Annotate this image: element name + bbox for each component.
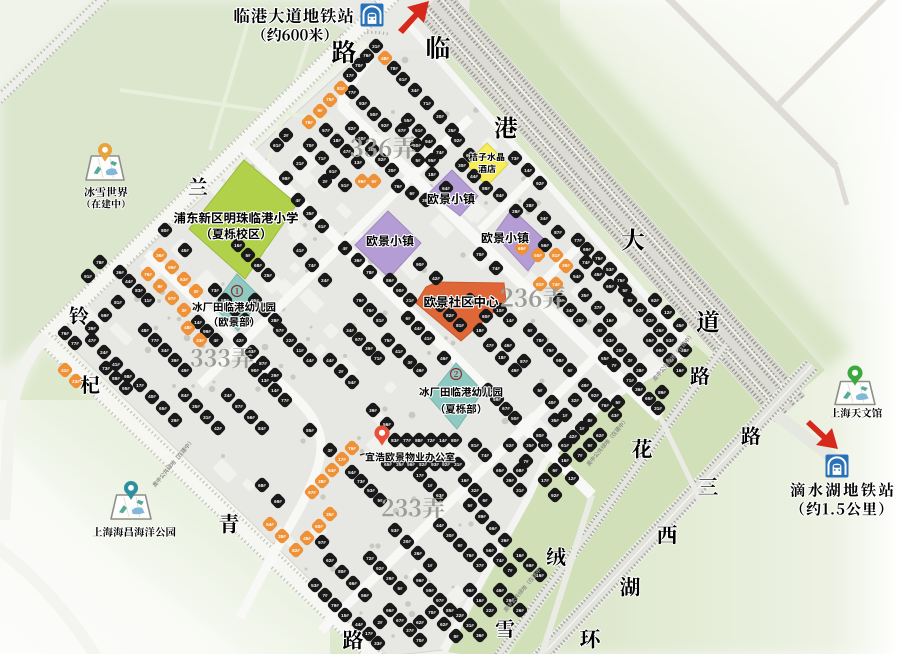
svg-text:93#: 93# — [359, 101, 367, 106]
svg-text:65#: 65# — [159, 406, 167, 411]
svg-text:5#: 5# — [245, 253, 251, 258]
svg-text:3#: 3# — [327, 448, 333, 453]
svg-text:41#: 41# — [395, 349, 403, 354]
svg-text:37#: 37# — [594, 305, 602, 310]
svg-text:81#: 81# — [552, 253, 560, 258]
svg-text:48#: 48# — [141, 328, 149, 333]
svg-text:33#: 33# — [196, 338, 204, 343]
svg-text:61#: 61# — [273, 143, 281, 148]
svg-text:18#: 18# — [333, 138, 341, 143]
svg-text:15#: 15# — [341, 613, 349, 618]
svg-text:69#: 69# — [583, 247, 591, 252]
svg-text:78#: 78# — [366, 270, 374, 275]
svg-text:79#: 79# — [356, 298, 364, 303]
svg-text:9#: 9# — [597, 328, 603, 333]
svg-text:85#: 85# — [306, 428, 314, 433]
svg-text:6#: 6# — [409, 191, 415, 196]
svg-text:87#: 87# — [259, 361, 267, 366]
svg-text:72#: 72# — [366, 556, 374, 561]
svg-text:55#: 55# — [601, 356, 609, 361]
svg-text:34#: 34# — [411, 88, 419, 93]
svg-text:53#: 53# — [311, 583, 319, 588]
svg-text:49#: 49# — [581, 383, 589, 388]
svg-text:24#: 24# — [321, 278, 329, 283]
svg-text:13#: 13# — [354, 160, 362, 165]
svg-text:60#: 60# — [315, 524, 323, 529]
svg-text:20#: 20# — [576, 318, 584, 323]
svg-text:54#: 54# — [348, 380, 356, 385]
svg-text:77#: 77# — [574, 238, 582, 243]
svg-text:56#: 56# — [247, 415, 255, 420]
svg-text:48#: 48# — [381, 56, 389, 61]
svg-text:56#: 56# — [361, 593, 369, 598]
svg-text:35#: 35# — [396, 462, 404, 467]
svg-text:73#: 73# — [102, 366, 110, 371]
svg-text:92#: 92# — [376, 566, 384, 571]
svg-text:67#: 67# — [541, 443, 549, 448]
svg-text:77#: 77# — [403, 438, 411, 443]
svg-text:61#: 61# — [561, 443, 569, 448]
svg-text:36#: 36# — [156, 253, 164, 258]
svg-text:86#: 86# — [386, 278, 394, 283]
svg-text:68#: 68# — [254, 263, 262, 268]
svg-text:31#: 31# — [466, 623, 474, 628]
svg-text:89#: 89# — [478, 514, 486, 519]
svg-text:93#: 93# — [431, 462, 439, 467]
svg-text:39#: 39# — [88, 326, 96, 331]
svg-text:94#: 94# — [425, 139, 433, 144]
svg-text:25#: 25# — [264, 273, 272, 278]
svg-text:34#: 34# — [540, 216, 548, 221]
svg-text:97#: 97# — [436, 598, 444, 603]
svg-text:76#: 76# — [363, 53, 371, 58]
svg-text:73#: 73# — [211, 288, 219, 293]
svg-text:98#: 98# — [124, 374, 132, 379]
svg-text:12#: 12# — [568, 476, 576, 481]
svg-text:82#: 82# — [378, 157, 386, 162]
svg-text:30#: 30# — [436, 114, 444, 119]
svg-text:96#: 96# — [386, 608, 394, 613]
svg-text:92#: 92# — [381, 123, 389, 128]
svg-text:30#: 30# — [458, 163, 466, 168]
svg-text:35#: 35# — [192, 404, 200, 409]
svg-text:24#: 24# — [100, 350, 108, 355]
svg-text:28#: 28# — [512, 209, 520, 214]
svg-text:84#: 84# — [181, 393, 189, 398]
svg-text:71#: 71# — [318, 156, 326, 161]
svg-text:31#: 31# — [203, 415, 211, 420]
svg-text:46#: 46# — [496, 588, 504, 593]
svg-text:79#: 79# — [331, 603, 339, 608]
svg-text:36#: 36# — [635, 387, 643, 392]
svg-text:70#: 70# — [476, 252, 484, 257]
svg-text:82#: 82# — [536, 282, 544, 287]
svg-text:1#: 1# — [579, 426, 585, 431]
svg-text:14#: 14# — [194, 320, 202, 325]
svg-text:3#: 3# — [193, 289, 199, 294]
svg-text:18#: 18# — [428, 172, 436, 177]
svg-text:90#: 90# — [251, 368, 259, 373]
svg-text:77#: 77# — [151, 338, 159, 343]
svg-text:67#: 67# — [502, 406, 510, 411]
svg-text:34#: 34# — [161, 348, 169, 353]
svg-text:63#: 63# — [180, 277, 188, 282]
svg-text:43#: 43# — [611, 413, 619, 418]
svg-text:41#: 41# — [112, 362, 120, 367]
svg-text:69#: 69# — [606, 284, 614, 289]
svg-text:54#: 54# — [266, 522, 274, 527]
svg-text:31#: 31# — [654, 406, 662, 411]
svg-text:38#: 38# — [318, 479, 326, 484]
svg-text:9#: 9# — [317, 108, 323, 113]
svg-text:67#: 67# — [355, 337, 363, 342]
svg-text:18#: 18# — [498, 355, 506, 360]
svg-text:66#: 66# — [489, 526, 497, 531]
svg-text:3#: 3# — [407, 360, 413, 365]
svg-text:41#: 41# — [61, 368, 69, 373]
svg-text:73#: 73# — [357, 479, 365, 484]
svg-text:90#: 90# — [396, 288, 404, 293]
svg-text:4#: 4# — [213, 338, 219, 343]
svg-text:92#: 92# — [591, 393, 599, 398]
svg-text:76#: 76# — [601, 403, 609, 408]
svg-text:8#: 8# — [453, 634, 459, 639]
svg-text:8#: 8# — [157, 284, 163, 289]
svg-text:17#: 17# — [365, 631, 373, 636]
svg-text:65#: 65# — [496, 468, 504, 473]
svg-text:21#: 21# — [406, 298, 414, 303]
svg-text:28#: 28# — [526, 203, 534, 208]
svg-text:61#: 61# — [399, 77, 407, 82]
svg-text:44#: 44# — [470, 174, 478, 179]
svg-text:75#: 75# — [384, 338, 392, 343]
svg-text:17#: 17# — [416, 473, 424, 478]
svg-text:39#: 39# — [369, 408, 377, 413]
svg-text:39#: 39# — [506, 478, 514, 483]
svg-text:38#: 38# — [278, 534, 286, 539]
svg-text:92#: 92# — [536, 181, 544, 186]
svg-text:32#: 32# — [471, 488, 479, 493]
svg-text:13#: 13# — [261, 378, 269, 383]
svg-text:53#: 53# — [666, 338, 674, 343]
svg-text:95#: 95# — [122, 386, 130, 391]
svg-text:62#: 62# — [416, 620, 424, 625]
svg-text:91#: 91# — [84, 274, 92, 279]
svg-text:67#: 67# — [308, 490, 316, 495]
svg-text:56#: 56# — [486, 548, 494, 553]
svg-text:45#: 45# — [181, 248, 189, 253]
svg-text:87#: 87# — [168, 296, 176, 301]
svg-text:81#: 81# — [456, 323, 464, 328]
svg-text:5#: 5# — [615, 400, 621, 405]
svg-text:14#: 14# — [271, 388, 279, 393]
svg-text:92#: 92# — [442, 462, 450, 467]
svg-text:34#: 34# — [566, 308, 574, 313]
svg-text:71#: 71# — [626, 378, 634, 383]
svg-text:78#: 78# — [390, 66, 398, 71]
svg-text:5#: 5# — [537, 388, 543, 393]
svg-text:44#: 44# — [326, 358, 334, 363]
svg-text:64#: 64# — [442, 186, 450, 191]
svg-text:92#: 92# — [454, 138, 462, 143]
svg-text:82#: 82# — [292, 548, 300, 553]
svg-text:20#: 20# — [388, 168, 396, 173]
svg-text:16#: 16# — [461, 478, 469, 483]
svg-text:26#: 26# — [414, 551, 422, 556]
svg-text:35#: 35# — [326, 512, 334, 517]
svg-text:21#: 21# — [296, 161, 304, 166]
svg-text:70#: 70# — [428, 610, 436, 615]
svg-text:88#: 88# — [482, 186, 490, 191]
svg-text:74#: 74# — [492, 266, 500, 271]
svg-text:53#: 53# — [606, 267, 614, 272]
svg-text:73#: 73# — [511, 156, 519, 161]
svg-text:22#: 22# — [456, 613, 464, 618]
svg-text:62#: 62# — [636, 308, 644, 313]
svg-text:98#: 98# — [282, 176, 290, 181]
svg-text:74#: 74# — [552, 282, 560, 287]
svg-text:79#: 79# — [546, 348, 554, 353]
svg-text:49#: 49# — [511, 368, 519, 373]
svg-text:39#: 39# — [365, 346, 373, 351]
svg-text:84#: 84# — [496, 193, 504, 198]
svg-text:7#: 7# — [322, 593, 328, 598]
svg-text:81#: 81# — [114, 300, 122, 305]
svg-text:82#: 82# — [348, 126, 356, 131]
svg-text:76#: 76# — [144, 272, 152, 277]
svg-text:41#: 41# — [296, 248, 304, 253]
svg-text:87#: 87# — [235, 404, 243, 409]
svg-text:29#: 29# — [386, 576, 394, 581]
svg-text:37#: 37# — [476, 563, 484, 568]
svg-text:16#: 16# — [606, 318, 614, 323]
svg-text:49#: 49# — [416, 368, 424, 373]
svg-text:2#: 2# — [283, 133, 289, 138]
svg-text:78#: 78# — [305, 120, 313, 125]
svg-text:60#: 60# — [482, 314, 490, 319]
svg-text:69#: 69# — [526, 563, 534, 568]
svg-text:1#: 1# — [562, 413, 568, 418]
svg-text:45#: 45# — [594, 272, 602, 277]
svg-text:50#: 50# — [511, 416, 519, 421]
svg-text:59#: 59# — [426, 588, 434, 593]
svg-text:89#: 89# — [658, 390, 666, 395]
svg-text:71#: 71# — [423, 101, 431, 106]
svg-text:85#: 85# — [446, 608, 454, 613]
svg-text:31#: 31# — [454, 462, 462, 467]
svg-text:70#: 70# — [416, 638, 424, 643]
svg-text:86#: 86# — [358, 179, 366, 184]
svg-text:35#: 35# — [581, 293, 589, 298]
svg-text:96#: 96# — [466, 588, 474, 593]
svg-text:34#: 34# — [346, 328, 354, 333]
svg-text:2#: 2# — [377, 620, 383, 625]
svg-text:65#: 65# — [518, 246, 526, 251]
svg-text:90#: 90# — [416, 262, 424, 267]
svg-text:47#: 47# — [343, 149, 351, 154]
svg-text:88#: 88# — [415, 438, 423, 443]
svg-text:44#: 44# — [306, 358, 314, 363]
svg-text:52#: 52# — [506, 443, 514, 448]
svg-text:62#: 62# — [651, 298, 659, 303]
svg-text:46#: 46# — [440, 356, 448, 361]
svg-text:29#: 29# — [171, 418, 179, 423]
svg-text:16#: 16# — [516, 553, 524, 558]
svg-text:70#: 70# — [306, 143, 314, 148]
svg-text:20#: 20# — [616, 348, 624, 353]
svg-text:75#: 75# — [326, 97, 334, 102]
svg-text:45#: 45# — [676, 323, 684, 328]
svg-text:83#: 83# — [391, 438, 399, 443]
svg-text:17#: 17# — [346, 73, 354, 78]
svg-text:77#: 77# — [348, 90, 356, 95]
svg-text:63#: 63# — [436, 493, 444, 498]
svg-text:74#: 74# — [496, 558, 504, 563]
svg-text:9#: 9# — [371, 179, 377, 184]
svg-text:5#: 5# — [622, 288, 628, 293]
svg-text:33#: 33# — [374, 641, 382, 646]
svg-text:14#: 14# — [506, 318, 514, 323]
svg-text:40#: 40# — [148, 394, 156, 399]
svg-text:44#: 44# — [414, 326, 422, 331]
svg-text:51#: 51# — [341, 183, 349, 188]
svg-text:80#: 80# — [451, 438, 459, 443]
svg-text:44#: 44# — [355, 622, 363, 627]
svg-text:97#: 97# — [318, 540, 326, 545]
svg-text:7#: 7# — [577, 453, 583, 458]
svg-text:50#: 50# — [370, 112, 378, 117]
svg-text:74#: 74# — [436, 150, 444, 155]
svg-text:17#: 17# — [136, 383, 144, 388]
svg-text:68#: 68# — [258, 483, 266, 488]
svg-text:4#: 4# — [295, 198, 301, 203]
svg-text:83#: 83# — [135, 288, 143, 293]
svg-text:9#: 9# — [457, 543, 463, 548]
svg-text:3#: 3# — [627, 358, 633, 363]
svg-text:18#: 18# — [476, 328, 484, 333]
svg-text:46#: 46# — [504, 343, 512, 348]
svg-text:95#: 95# — [428, 158, 436, 163]
svg-text:29#: 29# — [271, 373, 279, 378]
svg-text:53#: 53# — [391, 528, 399, 533]
svg-text:81#: 81# — [337, 86, 345, 91]
svg-text:81#: 81# — [471, 443, 479, 448]
svg-text:55#: 55# — [404, 118, 412, 123]
svg-text:1#: 1# — [427, 563, 433, 568]
svg-text:77#: 77# — [71, 341, 79, 346]
svg-text:47#: 47# — [88, 338, 96, 343]
svg-text:45#: 45# — [303, 536, 311, 541]
svg-text:16#: 16# — [476, 598, 484, 603]
svg-text:16#: 16# — [676, 368, 684, 373]
svg-text:6#: 6# — [482, 498, 488, 503]
svg-text:2#: 2# — [322, 179, 328, 184]
svg-text:99#: 99# — [203, 329, 211, 334]
svg-text:7#: 7# — [611, 363, 617, 368]
svg-text:80#: 80# — [536, 433, 544, 438]
svg-text:10#: 10# — [496, 308, 504, 313]
svg-text:11#: 11# — [296, 348, 304, 353]
svg-text:35#: 35# — [306, 211, 314, 216]
svg-text:26#: 26# — [516, 608, 524, 613]
svg-text:6#: 6# — [552, 468, 558, 473]
svg-text:16#: 16# — [561, 458, 569, 463]
svg-text:3#: 3# — [181, 308, 187, 313]
svg-text:78#: 78# — [536, 338, 544, 343]
svg-text:26#: 26# — [501, 538, 509, 543]
svg-text:62#: 62# — [326, 558, 334, 563]
svg-text:25#: 25# — [448, 128, 456, 133]
svg-text:61#: 61# — [318, 224, 326, 229]
svg-text:2#: 2# — [338, 369, 344, 374]
svg-text:7#: 7# — [523, 459, 529, 464]
svg-text:49#: 49# — [181, 368, 189, 373]
svg-text:4#: 4# — [342, 246, 348, 251]
svg-text:80#: 80# — [161, 228, 169, 233]
svg-text:87#: 87# — [554, 230, 562, 235]
svg-text:74#: 74# — [582, 260, 590, 265]
svg-text:62#: 62# — [596, 433, 604, 438]
svg-text:11#: 11# — [144, 298, 152, 303]
svg-text:62#: 62# — [440, 622, 448, 627]
svg-text:92#: 92# — [551, 493, 559, 498]
svg-text:1#: 1# — [427, 483, 433, 488]
svg-text:36#: 36# — [476, 633, 484, 638]
svg-text:37#: 37# — [406, 628, 414, 633]
svg-text:28#: 28# — [271, 318, 279, 323]
svg-text:20#: 20# — [403, 539, 411, 544]
svg-text:82#: 82# — [419, 462, 427, 467]
svg-text:14#: 14# — [439, 438, 447, 443]
svg-text:56#: 56# — [407, 462, 415, 467]
svg-text:6#: 6# — [527, 328, 533, 333]
svg-text:9#: 9# — [627, 298, 633, 303]
svg-text:36#: 36# — [116, 270, 124, 275]
svg-text:61#: 61# — [329, 169, 337, 174]
svg-text:42#: 42# — [214, 426, 222, 431]
svg-text:82#: 82# — [646, 318, 654, 323]
svg-text:6#: 6# — [567, 368, 573, 373]
svg-text:53#: 53# — [367, 488, 375, 493]
svg-text:5#: 5# — [397, 586, 403, 591]
svg-text:35#: 35# — [526, 443, 534, 448]
svg-text:36#: 36# — [354, 258, 362, 263]
svg-text:67#: 67# — [398, 128, 406, 133]
svg-text:67#: 67# — [396, 618, 404, 623]
svg-text:23#: 23# — [72, 379, 80, 384]
svg-text:76#: 76# — [61, 331, 69, 336]
svg-text:77#: 77# — [281, 398, 289, 403]
svg-text:98#: 98# — [556, 358, 564, 363]
svg-text:14#: 14# — [524, 168, 532, 173]
svg-text:54#: 54# — [328, 468, 336, 473]
svg-text:72#: 72# — [427, 438, 435, 443]
svg-text:35#: 35# — [551, 418, 559, 423]
svg-text:42#: 42# — [569, 434, 577, 439]
svg-text:57#: 57# — [276, 328, 284, 333]
svg-text:16#: 16# — [234, 243, 242, 248]
svg-text:99#: 99# — [656, 348, 664, 353]
svg-text:54#: 54# — [573, 274, 581, 279]
svg-text:95#: 95# — [168, 265, 176, 270]
svg-text:31#: 31# — [516, 488, 524, 493]
svg-text:96#: 96# — [416, 578, 424, 583]
svg-text:44#: 44# — [125, 279, 133, 284]
svg-text:42#: 42# — [432, 276, 440, 281]
svg-text:12#: 12# — [664, 310, 672, 315]
svg-text:65#: 65# — [384, 462, 392, 467]
svg-text:74#: 74# — [481, 453, 489, 458]
